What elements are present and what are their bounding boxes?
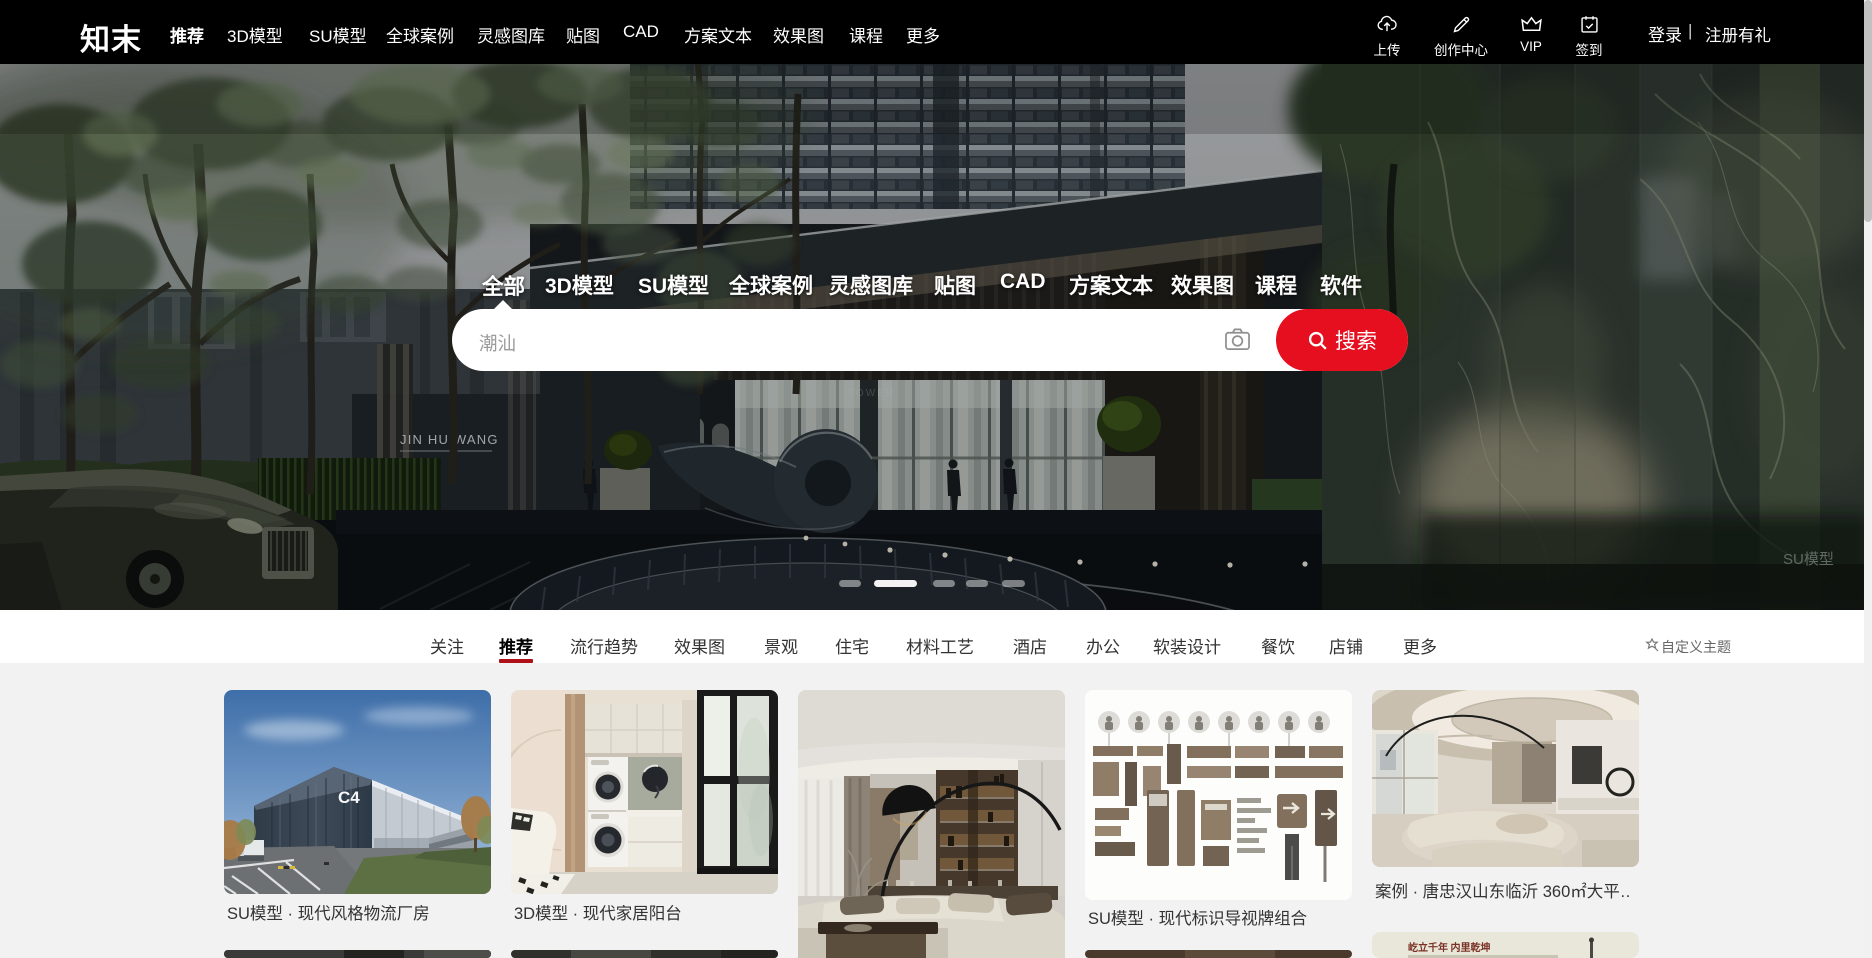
svg-text:屹立千年 内里乾坤: 屹立千年 内里乾坤 <box>1408 941 1491 954</box>
svg-text:C4: C4 <box>338 788 360 807</box>
